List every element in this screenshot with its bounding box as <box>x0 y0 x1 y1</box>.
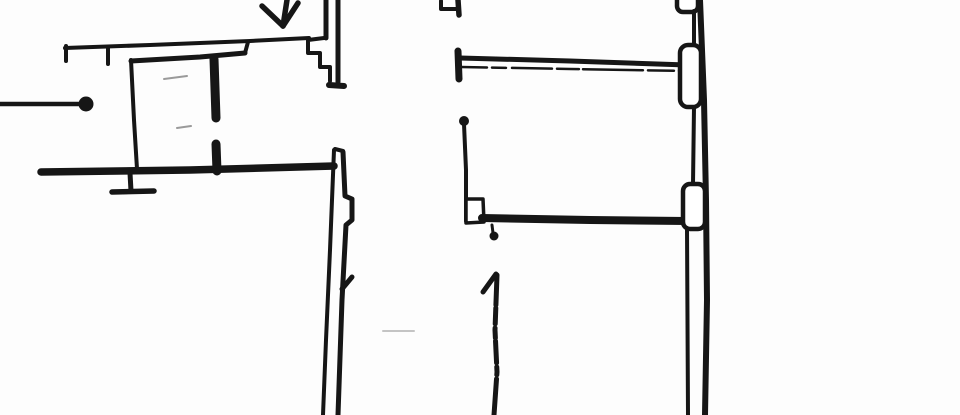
right-wall-pillar-lower <box>683 184 705 229</box>
left-boundary-dot <box>79 97 94 112</box>
interior-wall-upper-segment <box>214 59 216 118</box>
wall-support-foot <box>112 191 154 192</box>
wall-support-post <box>130 173 131 191</box>
room-left-wall <box>131 60 137 169</box>
top-wall-inner-line <box>131 53 245 61</box>
top-hook-bracket <box>441 1 456 9</box>
top-wall-outer-line <box>65 38 309 48</box>
door-hinge-dot <box>490 232 499 241</box>
top-wall-inner-jog <box>245 42 248 53</box>
main-wall-left-line <box>323 150 334 415</box>
bottom-middle-wall <box>482 218 687 221</box>
partition-line-stem <box>494 275 497 415</box>
pencil-smudge-upper <box>164 76 187 79</box>
stair-steps <box>308 38 330 81</box>
stair-foot <box>329 85 344 86</box>
right-wall-pillar-middle <box>680 45 701 107</box>
floor-plan-drawing <box>0 0 960 415</box>
upper-wall-top-line <box>460 58 687 65</box>
upper-wall-end-cap <box>458 51 459 79</box>
entrance-arrow-left-barb <box>262 6 283 26</box>
bottom-left-wall <box>41 166 334 172</box>
top-hook-stem <box>458 0 459 15</box>
right-wall-neck-lower <box>693 107 694 184</box>
right-wall-inner-line <box>687 228 688 415</box>
floor-plan-page <box>0 0 960 415</box>
upper-wall-bottom-line <box>461 67 687 71</box>
pencil-smudge-lower <box>177 126 191 128</box>
